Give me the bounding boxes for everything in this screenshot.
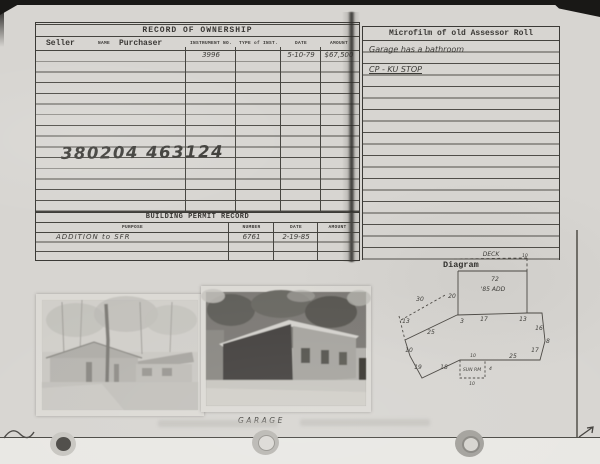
punch-hole [56,437,71,451]
dim-seg-c: 13 [519,316,527,323]
purchaser-header: Purchaser [119,37,162,50]
number-header: NUMBER [229,223,274,232]
scanned-assessor-card: RECORD OF OWNERSHIP Seller NAME Purchase… [0,0,600,464]
dim-porch-label: SUN RM [463,367,481,373]
instrument-no-header: INSTRUMENT NO. [186,37,236,50]
column-divider [320,47,321,211]
parcel-number: 380204 463124 [61,142,224,163]
dim-diag-lower-right: 17 [531,347,539,354]
dim-corner: 8 [546,338,550,345]
stray-mark-right [576,424,598,440]
permit-purpose-value: ADDITION to SFR [56,233,206,242]
record-of-ownership-table: RECORD OF OWNERSHIP Seller NAME Purchase… [35,22,360,212]
permit-header-row: PURPOSE NUMBER DATE AMOUNT [36,223,359,233]
date-header: DATE [281,37,321,50]
permit-rows: ADDITION to SFR 6761 2-19-85 [36,233,359,260]
dim-deck-depth: 10 [522,253,528,259]
dim-diag-lower-left: 19 [414,364,422,371]
purpose-header: PURPOSE [36,223,229,232]
punch-hole [462,436,480,453]
note-garage-bathroom: Garage has a bathroom [369,45,464,54]
dim-right-vertical: 16 [535,325,543,332]
note-cp-ku-stop: CP - KU STOP [369,65,422,74]
type-of-inst-header: TYPE of INST. [236,37,281,50]
garage-photo-image [201,286,371,412]
scan-corner-topright [550,0,600,17]
house-photo [36,294,204,416]
column-divider [228,222,229,260]
dim-porch-width-bottom: 10 [469,381,475,387]
column-divider [235,47,236,211]
bleed-through-smudge [158,420,278,427]
dim-top-width: 72 [491,276,499,283]
permit-date-header: DATE [274,223,318,232]
seller-header: Seller [46,37,75,50]
column-divider [317,222,318,260]
column-divider [280,47,281,211]
diagram-section: Diagram DECK 10 72 '85 ADD 20 30 13 3 17… [396,250,590,402]
instrument-no-value: 3996 [186,51,236,61]
card-bottom-edge [0,437,600,464]
permit-date-value: 2-19-85 [274,233,318,242]
dim-porch-width-top: 10 [470,353,476,359]
permit-amount-header: AMOUNT [318,223,357,232]
dim-deck: DECK [483,251,501,258]
building-permit-table: BUILDING PERMIT RECORD PURPOSE NUMBER DA… [35,212,360,261]
microfilm-ruled-lines: Garage has a bathroom CP - KU STOP [363,41,559,261]
dim-seg-b: 17 [480,316,488,323]
column-divider [185,47,186,211]
ownership-title: RECORD OF OWNERSHIP [36,24,359,37]
dim-add-left: 20 [448,293,456,300]
dim-diag-upper-left: 25 [427,329,435,336]
diagram-sketch: Diagram DECK 10 72 '85 ADD 20 30 13 3 17… [396,250,590,402]
dim-porch-depth: 4 [489,366,492,372]
dim-bottom-right: 25 [509,353,517,360]
permit-title: BUILDING PERMIT RECORD [36,213,359,223]
column-divider [273,222,274,260]
scan-top-edge [0,0,600,5]
garage-photo [201,286,371,412]
dim-addition-label: '85 ADD [481,286,506,293]
punch-hole [258,435,275,451]
permit-number-value: 6761 [229,233,274,242]
microfilm-section: Microfilm of old Assessor Roll Garage ha… [362,26,560,260]
diagram-label: Diagram [443,260,479,270]
stray-mark-left [2,424,36,442]
ownership-header-row: Seller NAME Purchaser INSTRUMENT NO. TYP… [36,37,359,51]
dim-left-vertical: 10 [405,347,413,354]
deed-date-value: 5-10-79 [281,51,321,61]
ownership-rows: 3996 5-10-79 $67,500 380204 463124 [36,51,359,212]
name-header: NAME [98,37,110,50]
dim-left-dash: 13 [402,318,410,325]
dim-dash-len: 30 [416,296,424,303]
bleed-through-smudge [300,419,430,426]
dim-bottom-left: 18 [440,364,448,371]
dim-seg-a: 3 [460,318,464,325]
microfilm-title: Microfilm of old Assessor Roll [363,27,559,41]
house-photo-image [36,294,204,416]
scan-left-smudge [0,5,4,47]
